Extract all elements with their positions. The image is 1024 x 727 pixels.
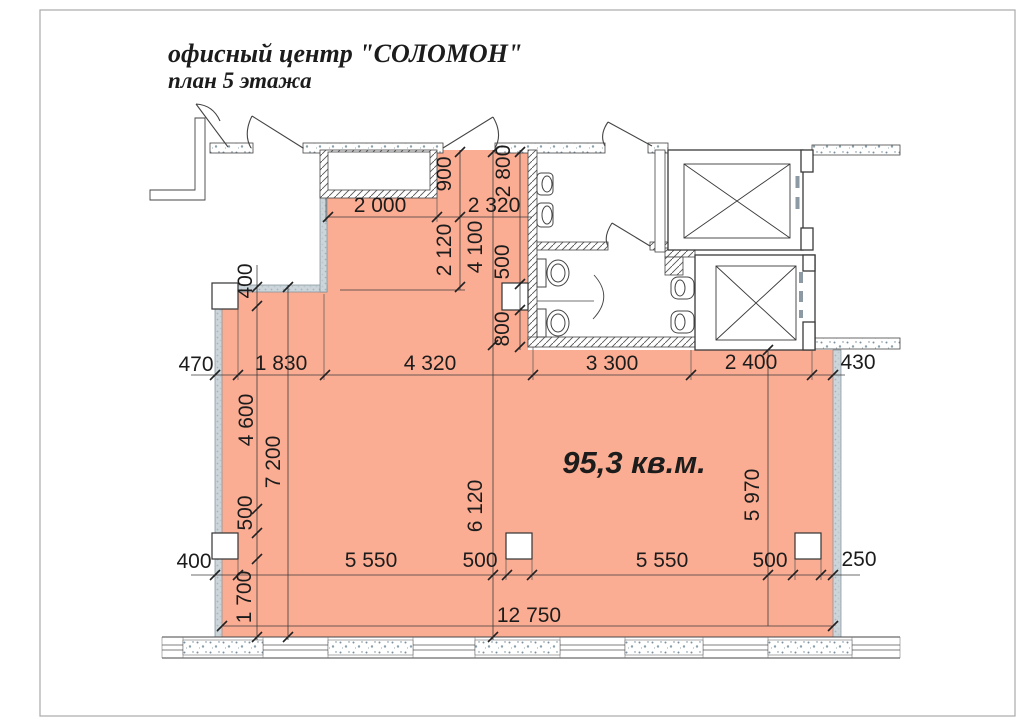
dim-label-5550a: 5 550	[345, 549, 398, 572]
dim-label-500-left: 500	[234, 495, 257, 530]
dim-label-470: 470	[178, 353, 213, 376]
elevator-upper	[668, 150, 813, 250]
dim-label-5970: 5 970	[741, 469, 764, 522]
sink-icon	[537, 173, 553, 195]
dim-label-7200: 7 200	[262, 436, 285, 489]
door-entry-b	[443, 117, 499, 148]
dim-label-2800: 2 800	[492, 145, 515, 198]
dim-label-400-col: 400	[234, 263, 257, 298]
elevator-lower	[695, 255, 815, 350]
area-size-label: 95,3 кв.м.	[562, 445, 706, 480]
door-wc-corridor	[603, 122, 652, 146]
urinal-icon	[671, 311, 694, 333]
dim-label-430: 430	[840, 351, 875, 374]
dim-label-1830: 1 830	[255, 352, 308, 375]
dim-label-5550b: 5 550	[636, 549, 689, 572]
column	[212, 533, 238, 559]
column	[795, 533, 821, 559]
dim-label-12750: 12 750	[497, 604, 561, 627]
niche	[320, 150, 437, 198]
page-title: офисный центр "СОЛОМОН"	[168, 39, 522, 68]
dim-label-2000: 2 000	[354, 194, 407, 217]
urinal-icon	[671, 277, 694, 299]
corridor-wall	[150, 118, 205, 200]
dim-label-400: 400	[176, 550, 211, 573]
floor-plan-drawing: офисный центр "СОЛОМОН" план 5 этажа	[0, 0, 1024, 727]
dim-label-800: 800	[491, 311, 514, 346]
dim-label-4320: 4 320	[404, 352, 457, 375]
dim-label-500a: 500	[462, 549, 497, 572]
floor-plan-page: офисный центр "СОЛОМОН" план 5 этажа	[0, 0, 1024, 727]
dim-label-500b: 500	[752, 549, 787, 572]
wc-stall-door-arc	[593, 275, 604, 319]
dim-label-1700: 1 700	[233, 571, 256, 624]
page-subtitle: план 5 этажа	[168, 68, 312, 93]
column	[506, 533, 532, 559]
dim-label-900: 900	[433, 156, 456, 191]
dim-label-250: 250	[841, 548, 876, 571]
dim-label-2120: 2 120	[433, 224, 456, 277]
dim-label-2400: 2 400	[725, 351, 778, 374]
door-wc-room	[606, 223, 650, 246]
dim-label-4600: 4 600	[235, 394, 258, 447]
dim-label-6120: 6 120	[464, 480, 487, 533]
toilet-icon	[537, 259, 569, 287]
dim-label-500-up: 500	[491, 244, 514, 279]
dim-label-4100: 4 100	[464, 221, 487, 274]
dim-label-3300: 3 300	[586, 352, 639, 375]
sink-icon	[537, 203, 553, 227]
toilet-icon	[537, 309, 569, 337]
door-entry-a	[247, 116, 303, 148]
facade-band	[162, 637, 900, 658]
